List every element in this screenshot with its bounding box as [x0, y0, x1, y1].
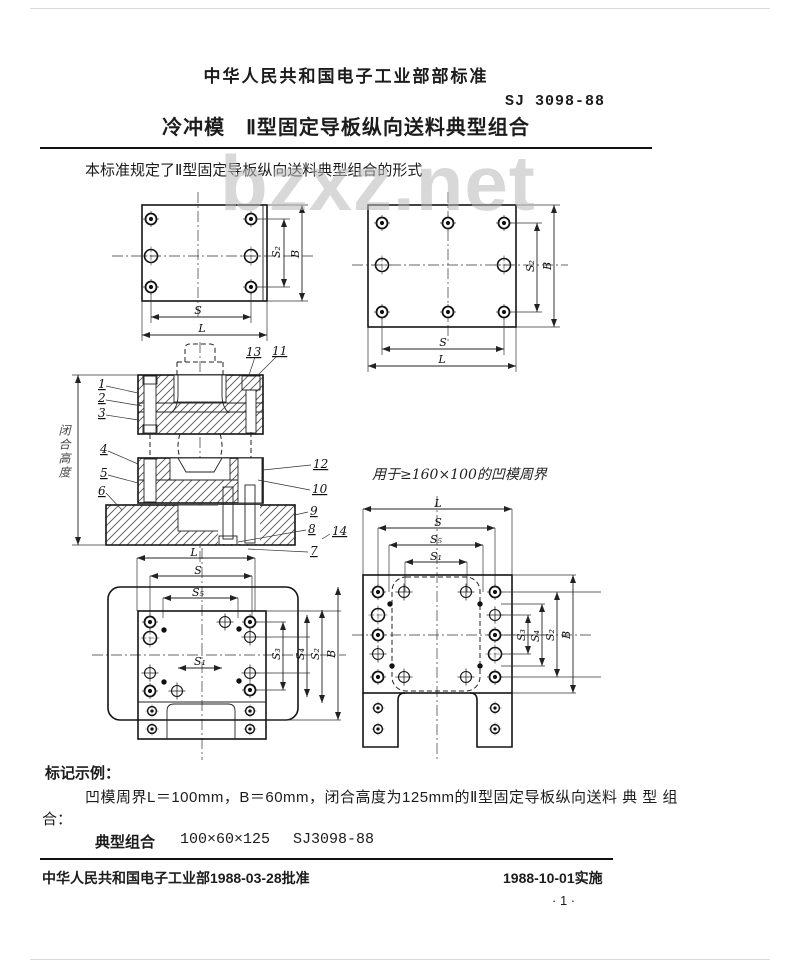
part-number-3: 3 — [98, 406, 106, 420]
part-number-12: 12 — [313, 457, 328, 471]
scope-statement: 本标准规定了Ⅱ型固定导板纵向送料典型组合的形式 — [85, 159, 422, 180]
upper-plate-plan-drawing-2: S₂ B S L — [350, 196, 580, 376]
dim-label-s4: S₄ — [294, 648, 307, 660]
title-rule — [40, 147, 652, 149]
implementation-date: 1988-10-01实施 — [503, 868, 603, 888]
dim-label-l: L — [433, 497, 441, 510]
dim-label-s: S — [194, 564, 202, 577]
dim-label-l: L — [197, 322, 205, 335]
dim-label-s5: S₅ — [430, 533, 443, 546]
designation-label: 典型组合 — [95, 831, 155, 852]
approval-note: 中华人民共和国电子工业部1988-03-28批准 — [42, 868, 310, 888]
dim-label-s2: S₂ — [524, 260, 537, 272]
dim-label-l: L — [189, 546, 197, 559]
dim-label-s2: S₂ — [544, 629, 557, 641]
part-number-8: 8 — [308, 522, 316, 536]
lower-assembly-plan-drawing-2: L S S₅ S₁ S₃ S₄ — [356, 496, 626, 763]
dim-label-b: B — [560, 631, 573, 640]
footer-rule — [40, 858, 613, 860]
part-number-4: 4 — [99, 442, 108, 456]
part-number-9: 9 — [310, 504, 318, 518]
dim-label-s4: S₄ — [529, 630, 542, 642]
closed-height-label: 闭合高度 — [56, 424, 73, 516]
assembly-section-drawing: 1 2 3 4 5 6 13 11 12 10 9 8 14 7 — [58, 342, 348, 577]
dim-label-s2: S₂ — [270, 246, 283, 258]
marking-example-body-line1: 凹模周界L＝100mm，B＝60mm，闭合高度为125mm的Ⅱ型固定导板纵向送料… — [85, 786, 678, 807]
part-number-1: 1 — [98, 377, 106, 391]
dim-label-b: B — [541, 262, 554, 271]
dim-label-s: S — [439, 336, 447, 349]
dim-label-s3: S₃ — [515, 629, 528, 641]
dim-label-s3: S₃ — [270, 648, 283, 660]
upper-plate-plan-drawing: S₂ B S L — [118, 196, 328, 346]
lower-die-set — [138, 458, 263, 503]
dim-label-b: B — [325, 650, 338, 659]
dim-label-s: S — [194, 304, 202, 317]
designation-size: 100×60×125 — [180, 831, 270, 848]
standard-document-page: 中华人民共和国电子工业部部标准 SJ 3098-88 冷冲模 Ⅱ型固定导板纵向送… — [0, 0, 800, 968]
lower-assembly-plan-drawing: L S S₅ S₁ S₃ S₄ S₂ — [90, 548, 350, 763]
dim-label-s5: S₅ — [192, 586, 205, 599]
designation-standard: SJ3098-88 — [293, 831, 374, 848]
marking-example-body-line2: 合： — [42, 808, 72, 829]
dim-label-s: S — [434, 516, 442, 529]
part-number-5: 5 — [100, 466, 108, 480]
upper-die-set — [138, 375, 263, 434]
part-number-13: 13 — [246, 345, 262, 359]
scan-edge-bottom — [30, 959, 770, 960]
part-number-2: 2 — [97, 391, 106, 405]
scan-edge-top — [30, 8, 770, 9]
part-number-10: 10 — [312, 482, 328, 496]
issuing-organization: 中华人民共和国电子工业部部标准 — [40, 62, 652, 87]
standard-number: SJ 3098-88 — [505, 93, 605, 110]
dim-label-s2: S₂ — [309, 648, 322, 660]
part-number-11: 11 — [272, 344, 287, 358]
dim-label-l: L — [437, 353, 445, 366]
part-number-14: 14 — [332, 524, 347, 538]
part-number-6: 6 — [98, 484, 106, 498]
die-boundary-note: 用于≥160×100的凹模周界 — [372, 464, 547, 484]
dim-label-s1: S₁ — [430, 550, 442, 563]
marking-example-heading: 标记示例： — [45, 762, 120, 783]
page-number: · 1 · — [552, 893, 575, 908]
dim-label-s1: S₁ — [194, 655, 206, 668]
dim-label-b: B — [289, 250, 302, 259]
page-title: 冷冲模 Ⅱ型固定导板纵向送料典型组合 — [40, 111, 652, 140]
